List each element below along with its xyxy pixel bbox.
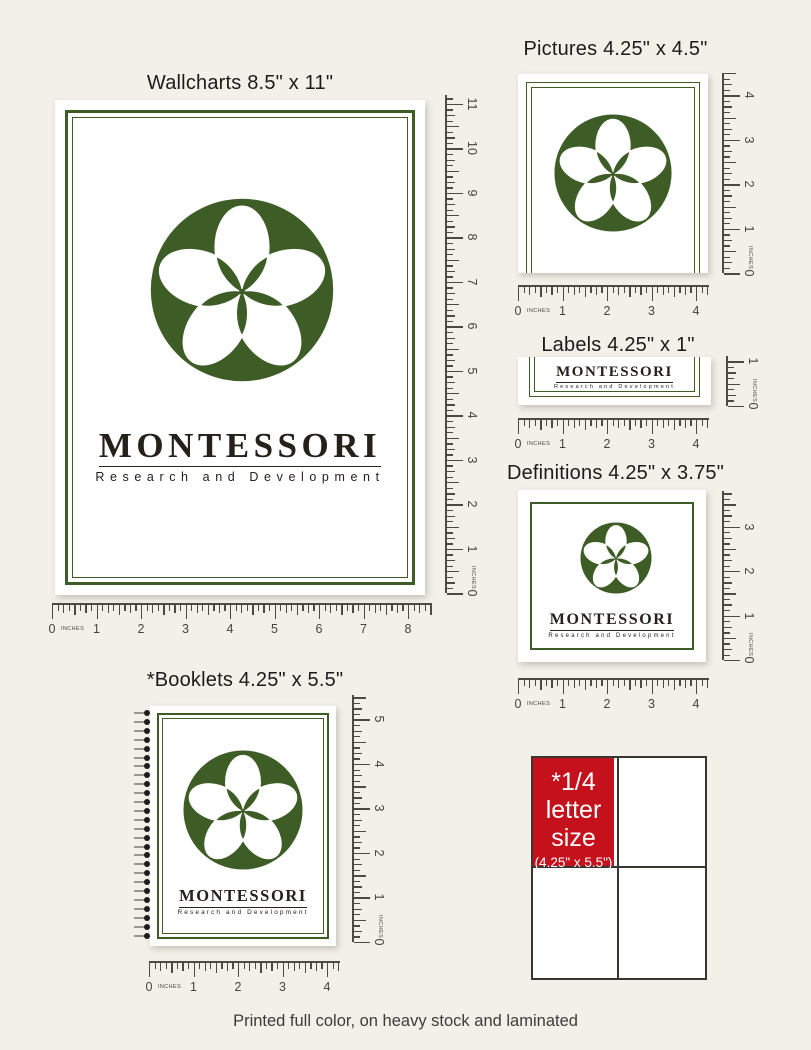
pictures-horizontal-ruler: 0INCHES1234 <box>518 285 709 287</box>
booklets-vertical-ruler: 0INCHES12345 <box>352 695 354 942</box>
quarter-line2: letter <box>533 796 614 824</box>
booklets-horizontal-ruler: 0INCHES1234 <box>149 961 340 963</box>
brand-name: MONTESSORI <box>179 888 307 908</box>
brand-name: MONTESSORI <box>99 428 381 467</box>
pictures-title: Pictures 4.25" x 4.5" <box>518 38 713 61</box>
wallchart-card: MONTESSORI Research and Development <box>55 100 425 595</box>
wallchart-vertical-ruler: 0INCHES1234567891011 <box>445 95 447 593</box>
quadrant-top-right <box>619 758 705 868</box>
footer-caption: Printed full color, on heavy stock and l… <box>0 1012 811 1031</box>
booklets-title: *Booklets 4.25" x 5.5" <box>140 669 350 692</box>
brand-name: MONTESSORI <box>550 612 674 631</box>
quarter-size-callout: *1/4 letter size (4.25" x 5.5") <box>533 758 614 866</box>
brand-block: MONTESSORI Research and Development <box>150 888 336 916</box>
brand-tagline: Research and Development <box>518 385 711 391</box>
booklet-cover: MONTESSORI Research and Development <box>150 706 336 946</box>
quarter-letter-diagram: *1/4 letter size (4.25" x 5.5") <box>531 756 707 980</box>
brand-tagline: Research and Development <box>150 910 336 917</box>
montessori-flower-logo <box>181 748 305 872</box>
brand-tagline: Research and Development <box>55 471 425 484</box>
spiral-binding <box>134 712 150 944</box>
definitions-title: Definitions 4.25" x 3.75" <box>503 462 728 485</box>
brand-tagline: Research and Development <box>518 633 706 639</box>
definitions-horizontal-ruler: 0INCHES1234 <box>518 678 709 680</box>
montessori-flower-logo <box>579 521 653 595</box>
definitions-card: MONTESSORI Research and Development <box>518 490 706 662</box>
quarter-line3: size <box>533 824 614 852</box>
wallchart-horizontal-ruler: 0INCHES12345678 <box>52 603 432 605</box>
montessori-flower-logo <box>552 112 674 234</box>
definitions-vertical-ruler: 0INCHES123 <box>722 491 724 660</box>
quadrant-bottom-right <box>619 868 705 978</box>
brand-name: MONTESSORI <box>556 365 673 383</box>
montessori-flower-logo <box>147 195 337 385</box>
brand-block: MONTESSORI Research and Development <box>518 364 711 391</box>
brand-block: MONTESSORI Research and Development <box>518 612 706 639</box>
quadrant-top-left: *1/4 letter size (4.25" x 5.5") <box>533 758 619 868</box>
wallcharts-title: Wallcharts 8.5" x 11" <box>55 72 425 95</box>
product-size-sheet: Wallcharts 8.5" x 11" MONTESSORI Researc… <box>0 0 811 1050</box>
pictures-vertical-ruler: 0INCHES1234 <box>722 73 724 273</box>
labels-title: Labels 4.25" x 1" <box>518 334 718 357</box>
labels-vertical-ruler: 0INCHES1 <box>726 356 728 406</box>
labels-horizontal-ruler: 0INCHES1234 <box>518 418 709 420</box>
brand-block: MONTESSORI Research and Development <box>55 428 425 484</box>
pictures-card <box>518 74 708 273</box>
labels-card: MONTESSORI Research and Development <box>518 357 711 405</box>
quadrant-bottom-left <box>533 868 619 978</box>
quarter-line1: *1/4 <box>533 768 614 796</box>
